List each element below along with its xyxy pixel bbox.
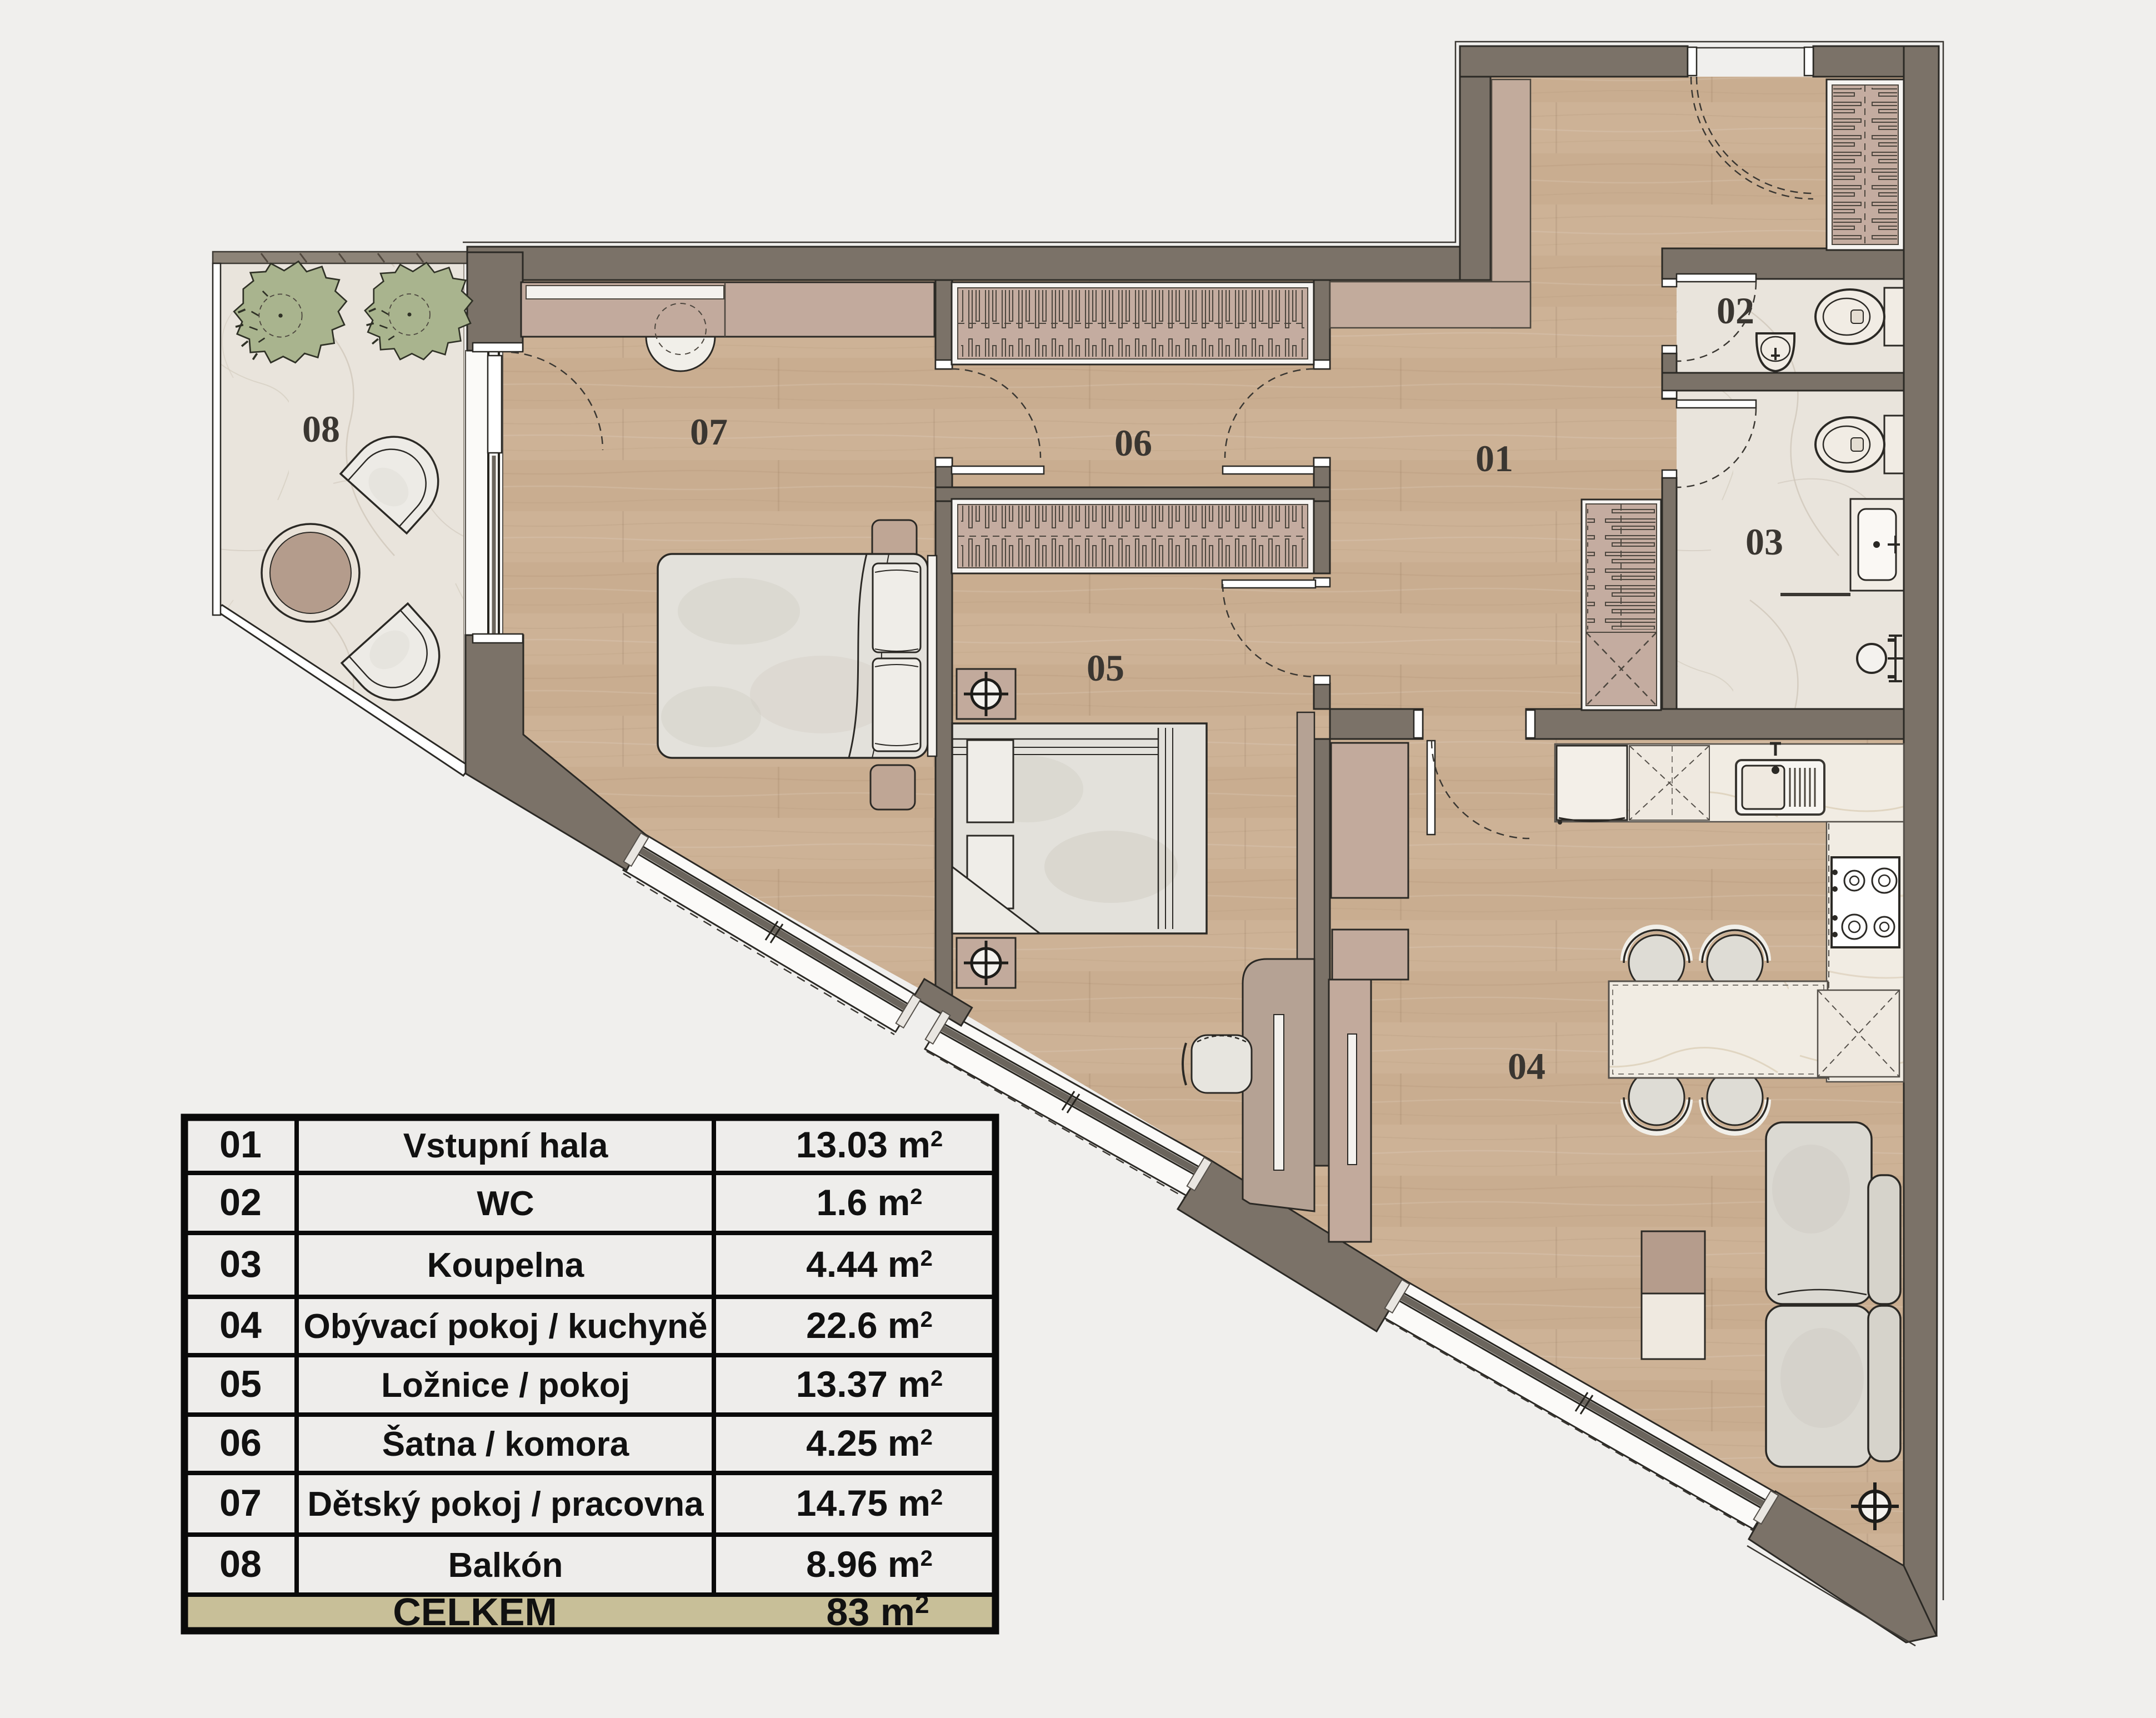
svg-text:22.6 m2: 22.6 m2 xyxy=(806,1305,933,1346)
svg-text:02: 02 xyxy=(1717,289,1754,332)
svg-text:01: 01 xyxy=(1475,437,1513,480)
svg-text:1.6 m2: 1.6 m2 xyxy=(816,1182,922,1223)
svg-text:04: 04 xyxy=(219,1304,262,1346)
svg-text:Vstupní hala: Vstupní hala xyxy=(403,1127,608,1165)
svg-text:Balkón: Balkón xyxy=(448,1546,563,1585)
svg-text:4.25 m2: 4.25 m2 xyxy=(806,1422,933,1464)
svg-text:08: 08 xyxy=(302,408,340,450)
svg-text:04: 04 xyxy=(1508,1045,1545,1087)
svg-text:Koupelna: Koupelna xyxy=(427,1246,584,1285)
svg-text:03: 03 xyxy=(1745,521,1783,563)
svg-text:CELKEM: CELKEM xyxy=(393,1590,557,1634)
svg-text:8.96 m2: 8.96 m2 xyxy=(806,1544,933,1585)
svg-text:4.44 m2: 4.44 m2 xyxy=(806,1243,933,1285)
svg-text:08: 08 xyxy=(219,1543,262,1585)
svg-text:07: 07 xyxy=(690,411,728,453)
svg-text:14.75 m2: 14.75 m2 xyxy=(796,1482,943,1524)
svg-text:05: 05 xyxy=(219,1363,262,1405)
svg-text:06: 06 xyxy=(1114,422,1152,464)
svg-text:13.03 m2: 13.03 m2 xyxy=(796,1124,943,1165)
svg-text:WC: WC xyxy=(477,1185,534,1223)
svg-text:06: 06 xyxy=(219,1422,262,1464)
svg-text:Dětský pokoj / pracovna: Dětský pokoj / pracovna xyxy=(307,1485,704,1524)
svg-text:07: 07 xyxy=(219,1482,262,1524)
svg-text:03: 03 xyxy=(219,1243,262,1285)
svg-text:Obývací pokoj / kuchyně: Obývací pokoj / kuchyně xyxy=(303,1307,707,1346)
svg-text:13.37 m2: 13.37 m2 xyxy=(796,1364,943,1405)
svg-text:Ložnice / pokoj: Ložnice / pokoj xyxy=(381,1366,630,1405)
svg-text:Šatna / komora: Šatna / komora xyxy=(382,1425,629,1464)
svg-text:01: 01 xyxy=(219,1123,262,1166)
svg-text:83 m2: 83 m2 xyxy=(826,1590,929,1634)
svg-text:05: 05 xyxy=(1087,647,1124,689)
svg-text:02: 02 xyxy=(219,1181,262,1223)
